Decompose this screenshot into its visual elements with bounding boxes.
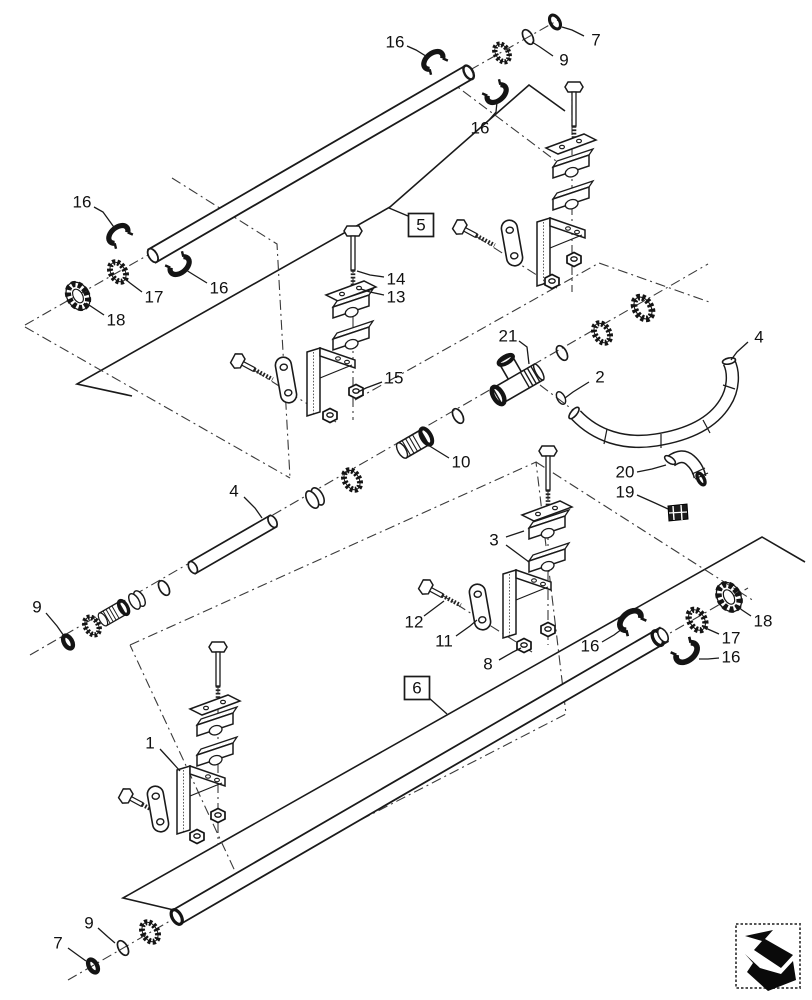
axis-fittings (61, 294, 656, 650)
callout-leader-3 (506, 545, 529, 562)
callout-leader-17 (703, 627, 719, 634)
seal-ring (450, 407, 466, 425)
callout-label-9-19: 9 (32, 598, 41, 617)
callout-label-16-6: 16 (210, 279, 229, 298)
ring-nut (630, 294, 655, 322)
collar-17 (685, 607, 709, 633)
callout-leader-18 (86, 303, 104, 315)
callout-leader-9 (532, 42, 553, 56)
clamp-16 (420, 48, 447, 75)
callout-label-13-9: 13 (387, 288, 406, 307)
clamp-16 (616, 607, 646, 636)
nut-18 (61, 278, 95, 314)
callout-label-16-25: 16 (581, 637, 600, 656)
tee-fitting (479, 344, 546, 406)
bracket (307, 348, 355, 416)
callout-leader-12 (424, 601, 444, 616)
clamp-half (197, 737, 237, 766)
callout-layer: 1616791617161814131552124102019493121186… (32, 27, 772, 961)
nut-8 (517, 639, 531, 653)
coupling-nut (341, 467, 364, 492)
callout-label-17-5: 17 (145, 288, 164, 307)
exploded-parts-figure: 1616791617161814131552124102019493121186… (0, 0, 812, 1000)
parts-diagram-page: 1616791617161814131552124102019493121186… (0, 0, 812, 1000)
callout-label-14-8: 14 (387, 270, 406, 289)
coupling-nut (591, 320, 614, 345)
callout-label-16-26: 16 (722, 648, 741, 667)
callout-leader-8 (499, 648, 521, 660)
callout-label-7-2: 7 (591, 31, 600, 50)
callout-label-4-18: 4 (229, 482, 238, 501)
callout-label-6-24: 6 (412, 679, 421, 698)
callout-leader-16 (186, 270, 207, 283)
callout-leader-3 (506, 531, 524, 537)
nut (323, 409, 337, 423)
callout-leader-9 (98, 928, 115, 943)
callout-label-1-29: 1 (145, 734, 154, 753)
callout-label-18-28: 18 (754, 612, 773, 631)
nut-15 (349, 385, 363, 399)
clamp-16 (671, 637, 701, 666)
callout-label-18-7: 18 (107, 311, 126, 330)
nut (541, 623, 555, 637)
collar (303, 486, 327, 511)
boundary-upper (172, 178, 290, 478)
seal-ring (156, 579, 172, 597)
bracket-assembly-center (229, 226, 376, 423)
callout-leader-6 (429, 698, 447, 714)
callout-leader-16 (94, 207, 116, 230)
nut (190, 830, 204, 844)
link-plate (500, 219, 524, 267)
callout-leader-16 (699, 658, 719, 659)
callout-label-11-22: 11 (435, 632, 453, 651)
callout-leader-4 (731, 342, 748, 360)
o-ring (61, 634, 75, 650)
bracket (537, 218, 585, 286)
callout-label-16-0: 16 (73, 193, 92, 212)
callout-leader-9 (46, 613, 64, 636)
coupling-10 (394, 426, 435, 460)
bottom-tube-left-fittings (86, 919, 161, 974)
nut-18 (711, 578, 746, 616)
callout-label-17-27: 17 (722, 629, 741, 648)
callout-label-21-12: 21 (499, 327, 518, 346)
callout-leader-21 (519, 341, 529, 364)
clamp-16 (482, 79, 509, 106)
ribbed-coupling (96, 599, 131, 628)
callout-leader-17 (124, 278, 142, 292)
bolt (229, 351, 276, 386)
previous-figure-button[interactable] (736, 924, 800, 991)
centerlines (25, 19, 754, 980)
coupling-nut (492, 42, 512, 65)
callout-leader-4 (244, 497, 262, 518)
bottom-tube (169, 626, 671, 926)
callout-leader-16 (602, 629, 622, 642)
mid-tube (186, 514, 279, 575)
callout-leader-14 (357, 271, 384, 277)
nut (545, 275, 559, 289)
clamp-16 (105, 222, 132, 249)
callout-label-3-20: 3 (489, 531, 498, 550)
nut (211, 809, 225, 823)
callout-label-5-11: 5 (416, 216, 425, 235)
boundary-lower-right (536, 462, 754, 601)
link-plate (274, 356, 298, 404)
callout-leader-11 (456, 620, 477, 636)
bracket-assembly-lower-left (117, 642, 240, 844)
callout-label-4-14: 4 (754, 328, 763, 347)
callout-leader-20 (637, 465, 666, 472)
plug-fitting (668, 504, 688, 521)
bolt (451, 217, 498, 252)
callout-label-9-30: 9 (84, 914, 93, 933)
callout-label-16-1: 16 (386, 33, 405, 52)
nut (567, 253, 581, 267)
callout-leader-7 (562, 27, 584, 36)
callout-label-2-13: 2 (595, 368, 604, 387)
seal-ring (554, 344, 570, 362)
curved-hose (567, 357, 736, 448)
callout-label-19-17: 19 (616, 483, 635, 502)
link-plate (146, 785, 170, 833)
callout-label-7-31: 7 (53, 934, 62, 953)
callout-leader-16 (407, 46, 429, 58)
callout-leader-10 (428, 445, 449, 458)
boundary-upper-left (25, 327, 290, 478)
callout-label-20-16: 20 (616, 463, 635, 482)
callout-leader-1 (160, 749, 180, 771)
callout-label-12-21: 12 (405, 613, 424, 632)
callout-label-10-15: 10 (452, 453, 471, 472)
clamp-half-3 (529, 543, 569, 572)
callout-label-15-10: 15 (385, 369, 404, 388)
ring-7 (547, 13, 563, 31)
clamp-half (553, 181, 593, 210)
bolt-12 (417, 577, 464, 612)
callout-label-9-3: 9 (559, 51, 568, 70)
callout-label-16-4: 16 (471, 119, 490, 138)
callout-leader-2 (565, 382, 589, 398)
callout-leader-19 (637, 495, 668, 509)
elbow-fitting (663, 454, 708, 486)
callout-leader-7 (68, 948, 86, 961)
callout-leader-5 (389, 208, 408, 216)
callout-label-8-23: 8 (483, 655, 492, 674)
bracket-assembly-top-right (451, 82, 596, 289)
